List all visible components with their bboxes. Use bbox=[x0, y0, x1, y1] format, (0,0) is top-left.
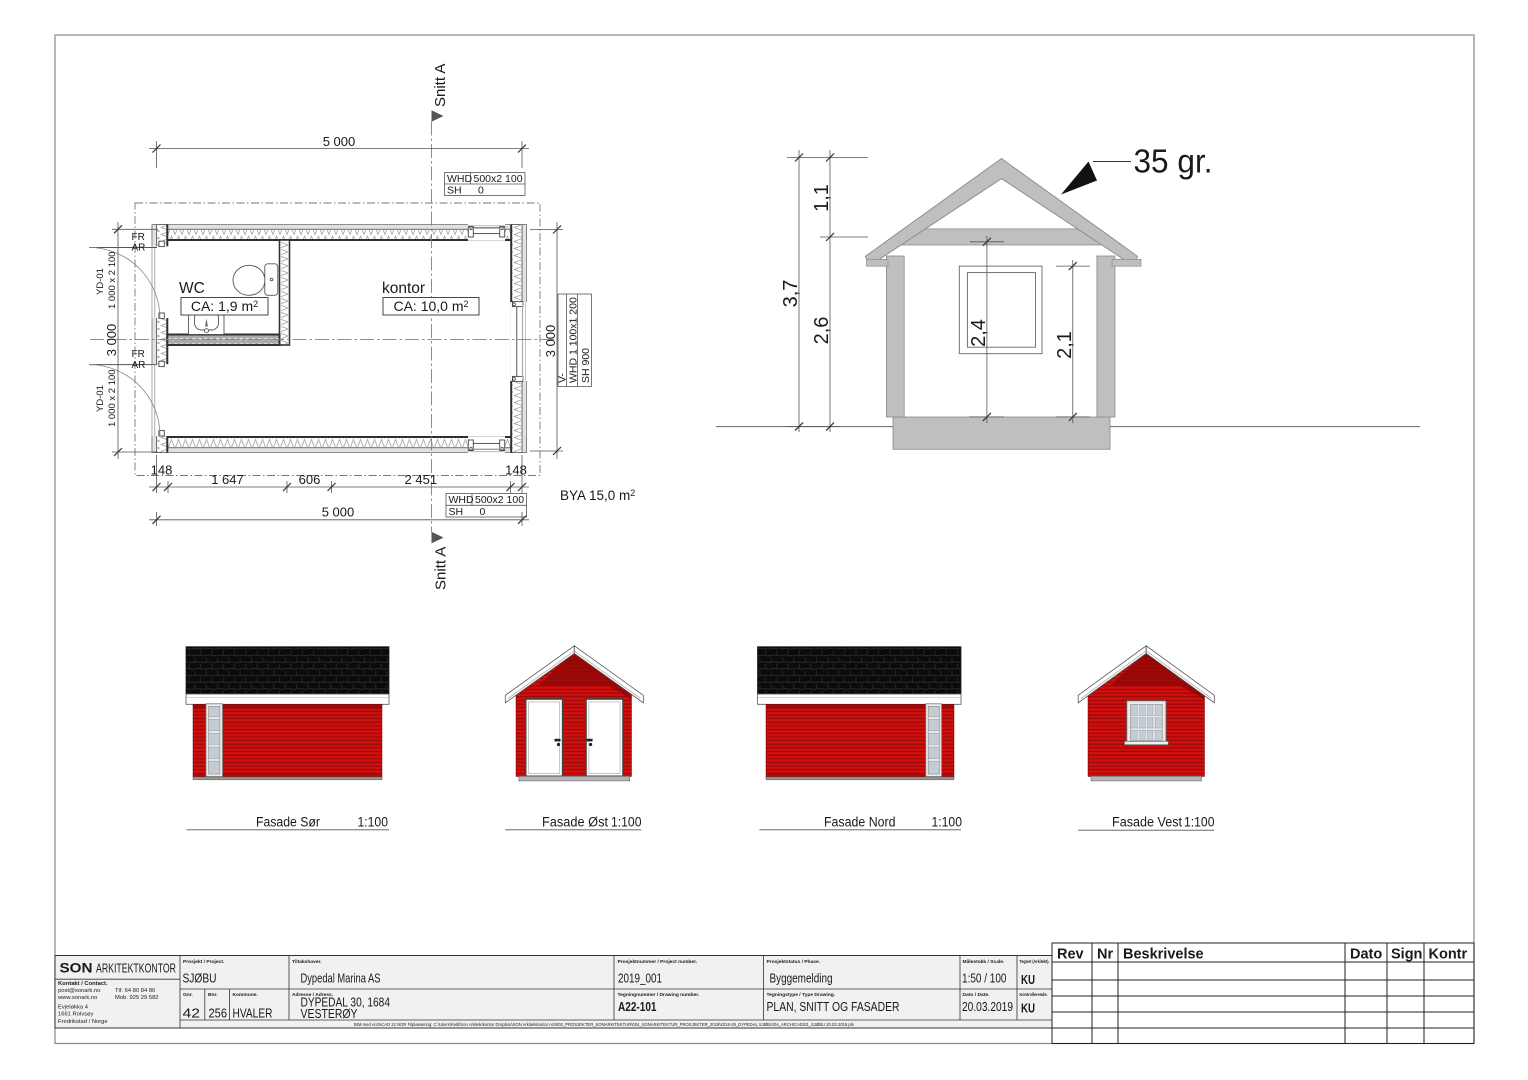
svg-text:42: 42 bbox=[183, 1006, 201, 1021]
svg-text:1 000 x 2 100: 1 000 x 2 100 bbox=[107, 369, 118, 427]
svg-text:FR: FR bbox=[132, 349, 145, 360]
svg-text:A22-101: A22-101 bbox=[618, 999, 657, 1014]
svg-text:2,4: 2,4 bbox=[968, 319, 990, 347]
svg-text:500x2 100: 500x2 100 bbox=[475, 494, 524, 506]
svg-text:1:50 / 100: 1:50 / 100 bbox=[962, 971, 1007, 986]
svg-text:Mob. 925 29 582: Mob. 925 29 582 bbox=[115, 995, 159, 1001]
svg-text:Dato / Date.: Dato / Date. bbox=[963, 992, 991, 998]
svg-text:500x2 100: 500x2 100 bbox=[474, 173, 523, 185]
svg-text:Snitt A: Snitt A bbox=[433, 547, 450, 590]
svg-text:Snitt A: Snitt A bbox=[432, 64, 449, 107]
svg-text:20.03.2019: 20.03.2019 bbox=[962, 999, 1013, 1014]
svg-text:SH: SH bbox=[449, 506, 464, 518]
svg-text:2,6: 2,6 bbox=[811, 317, 833, 345]
svg-text:256: 256 bbox=[209, 1006, 228, 1021]
svg-text:Fasade Nord: Fasade Nord bbox=[824, 815, 896, 830]
svg-text:FR: FR bbox=[132, 232, 145, 243]
svg-text:3 000: 3 000 bbox=[104, 324, 119, 357]
svg-text:3,7: 3,7 bbox=[780, 280, 802, 308]
svg-text:5 000: 5 000 bbox=[322, 505, 355, 520]
svg-text:CA: 10,0 m2: CA: 10,0 m2 bbox=[393, 298, 468, 314]
svg-text:Tegningstype / Type Drawing.: Tegningstype / Type Drawing. bbox=[767, 992, 836, 998]
svg-text:2 451: 2 451 bbox=[405, 472, 438, 487]
svg-text:Tlf. 64 80 84 80: Tlf. 64 80 84 80 bbox=[115, 988, 155, 994]
svg-text:Tegnet (Arkitekt).: Tegnet (Arkitekt). bbox=[1020, 959, 1050, 965]
svg-text:0: 0 bbox=[480, 506, 486, 518]
svg-text:WHD 1 100x1 200: WHD 1 100x1 200 bbox=[567, 297, 579, 383]
svg-text:Kontrollerende.: Kontrollerende. bbox=[1020, 992, 1048, 998]
svg-text:Nr: Nr bbox=[1097, 947, 1113, 963]
svg-text:1:100: 1:100 bbox=[932, 815, 963, 830]
svg-text:Prosjekt / Project.: Prosjekt / Project. bbox=[183, 959, 225, 965]
svg-text:1:100: 1:100 bbox=[358, 815, 389, 830]
svg-text:KU: KU bbox=[1021, 972, 1035, 987]
svg-text:Kontakt / Contact.: Kontakt / Contact. bbox=[58, 981, 108, 987]
svg-text:CA: 1,9 m2: CA: 1,9 m2 bbox=[191, 298, 258, 314]
svg-text:Tegningnummer / Drawing number: Tegningnummer / Drawing number. bbox=[618, 992, 700, 998]
svg-text:PLAN, SNITT OG FASADER: PLAN, SNITT OG FASADER bbox=[767, 999, 900, 1014]
svg-text:HVALER: HVALER bbox=[233, 1006, 273, 1021]
svg-text:Evjeløkka 4: Evjeløkka 4 bbox=[58, 1005, 89, 1011]
svg-text:YD-01: YD-01 bbox=[95, 268, 106, 295]
svg-text:ARKITEKTKONTOR: ARKITEKTKONTOR bbox=[96, 961, 176, 976]
svg-text:WHD: WHD bbox=[449, 494, 474, 506]
svg-text:Dato: Dato bbox=[1350, 947, 1382, 963]
svg-text:Gnr.: Gnr. bbox=[183, 992, 193, 998]
svg-text:Beskrivelse: Beskrivelse bbox=[1123, 947, 1204, 963]
svg-text:SH: SH bbox=[447, 184, 462, 196]
svg-text:SH 900: SH 900 bbox=[580, 348, 592, 383]
svg-text:Fasade Sør: Fasade Sør bbox=[256, 815, 320, 830]
svg-text:WHD: WHD bbox=[447, 173, 472, 185]
svg-text:1:100: 1:100 bbox=[611, 815, 642, 830]
svg-text:AR: AR bbox=[132, 360, 146, 371]
svg-text:Rev: Rev bbox=[1057, 947, 1084, 963]
svg-text:Prosjektstatus / Phase.: Prosjektstatus / Phase. bbox=[767, 959, 821, 965]
svg-text:Kontr: Kontr bbox=[1429, 947, 1468, 963]
svg-text:VESTERØY: VESTERØY bbox=[301, 1006, 358, 1021]
svg-text:2,1: 2,1 bbox=[1054, 331, 1076, 359]
svg-text:YD-01: YD-01 bbox=[95, 385, 106, 412]
svg-text:AR: AR bbox=[132, 243, 146, 254]
svg-text:WC: WC bbox=[179, 280, 205, 297]
svg-text:Sign: Sign bbox=[1391, 947, 1422, 963]
svg-text:www.sonark.no: www.sonark.no bbox=[57, 995, 97, 1001]
svg-text:Målestokk / Scale.: Målestokk / Scale. bbox=[963, 958, 1006, 965]
svg-text:1:100: 1:100 bbox=[1184, 815, 1215, 830]
svg-text:post@sonark.no: post@sonark.no bbox=[58, 988, 100, 994]
svg-text:BYA 15,0 m2: BYA 15,0 m2 bbox=[560, 488, 635, 503]
svg-text:Byggemelding: Byggemelding bbox=[770, 971, 833, 986]
svg-text:148: 148 bbox=[505, 463, 527, 478]
svg-text:Fasade Vest: Fasade Vest bbox=[1112, 815, 1182, 830]
svg-text:Fredrikstad / Norge: Fredrikstad / Norge bbox=[58, 1019, 108, 1025]
svg-text:2019_001: 2019_001 bbox=[618, 971, 662, 986]
svg-text:1 000 x 2 100: 1 000 x 2 100 bbox=[107, 251, 118, 309]
svg-text:3 000: 3 000 bbox=[543, 325, 558, 358]
svg-text:KU: KU bbox=[1021, 1001, 1035, 1016]
svg-text:1661 Rolvsøy: 1661 Rolvsøy bbox=[58, 1012, 94, 1018]
svg-text:Bnr.: Bnr. bbox=[208, 992, 218, 998]
svg-text:SJØBU: SJØBU bbox=[183, 971, 217, 986]
svg-text:1,1: 1,1 bbox=[811, 184, 833, 212]
svg-text:SON: SON bbox=[60, 960, 93, 976]
svg-text:0: 0 bbox=[478, 184, 484, 196]
svg-text:35 gr.: 35 gr. bbox=[1134, 143, 1213, 180]
svg-text:BIM med ArchiCAD 22 NOR Fil: BIM med ArchiCAD 22 NOR Filplassering: C… bbox=[354, 1022, 854, 1027]
svg-text:Dypedal Marina AS: Dypedal Marina AS bbox=[301, 971, 381, 986]
svg-text:Tiltakshaver.: Tiltakshaver. bbox=[292, 959, 322, 965]
svg-text:kontor: kontor bbox=[382, 280, 425, 297]
svg-text:Prosjektnummer / Project numbe: Prosjektnummer / Project number. bbox=[618, 959, 698, 965]
svg-text:148: 148 bbox=[151, 463, 173, 478]
svg-text:Fasade Øst: Fasade Øst bbox=[542, 815, 608, 830]
svg-text:5 000: 5 000 bbox=[323, 134, 356, 149]
svg-text:1 647: 1 647 bbox=[211, 472, 244, 487]
svg-text:606: 606 bbox=[299, 472, 321, 487]
svg-text:Kommune.: Kommune. bbox=[233, 992, 259, 998]
